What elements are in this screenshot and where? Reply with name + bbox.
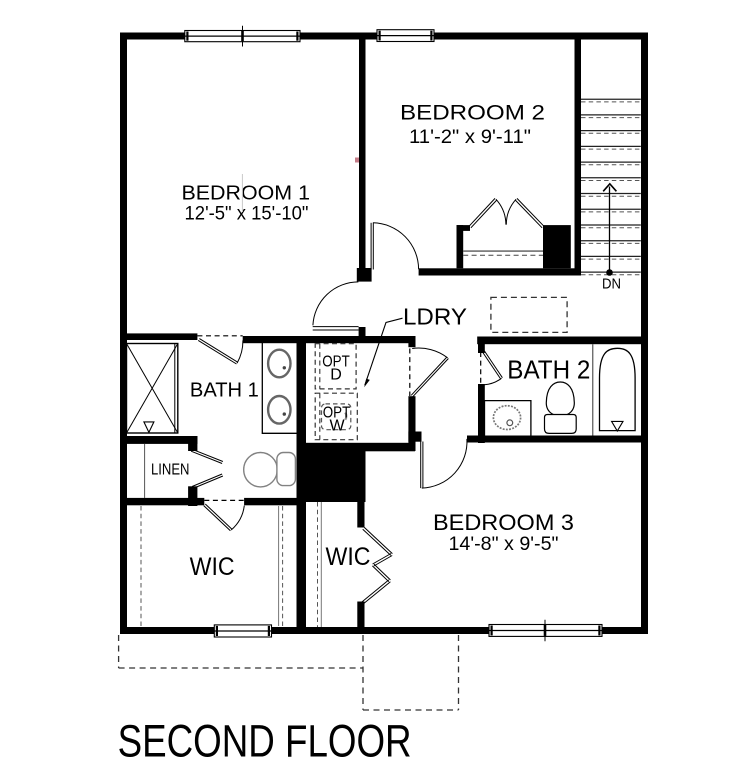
svg-text:D: D bbox=[330, 367, 342, 384]
svg-text:WIC: WIC bbox=[190, 553, 235, 581]
svg-text:BEDROOM 3: BEDROOM 3 bbox=[433, 510, 574, 535]
svg-text:W: W bbox=[329, 417, 345, 434]
svg-text:BEDROOM 2: BEDROOM 2 bbox=[400, 101, 545, 124]
svg-text:14'-8" x 9'-5": 14'-8" x 9'-5" bbox=[449, 533, 559, 555]
svg-text:LINEN: LINEN bbox=[151, 461, 190, 478]
svg-text:WIC: WIC bbox=[326, 543, 371, 571]
svg-text:DN: DN bbox=[602, 276, 621, 293]
svg-text:BATH 1: BATH 1 bbox=[190, 380, 259, 402]
svg-text:SECOND FLOOR: SECOND FLOOR bbox=[118, 716, 412, 767]
svg-text:11'-2" x 9'-11": 11'-2" x 9'-11" bbox=[409, 127, 531, 148]
svg-text:LDRY: LDRY bbox=[403, 304, 467, 330]
svg-text:BEDROOM 1: BEDROOM 1 bbox=[182, 182, 311, 205]
svg-text:12'-5" x 15'-10": 12'-5" x 15'-10" bbox=[185, 204, 309, 225]
svg-text:BATH 2: BATH 2 bbox=[507, 357, 590, 385]
